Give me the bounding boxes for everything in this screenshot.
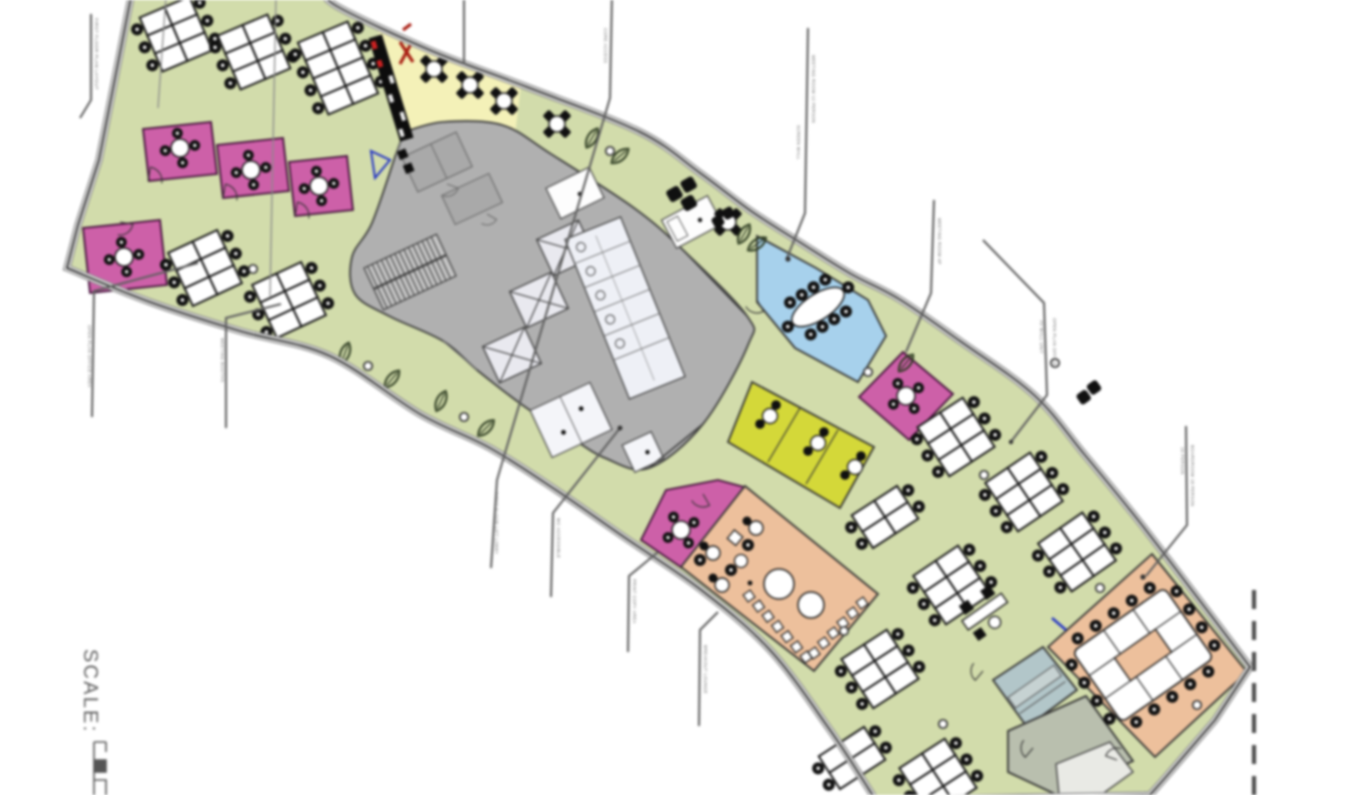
svg-text:WC ACCESSIBLE: WC ACCESSIBLE [556, 518, 561, 558]
svg-text:FIRST FLOOR PLAN LAYOUT: FIRST FLOOR PLAN LAYOUT [94, 18, 99, 90]
svg-text:MEETING ROOM 12 PERSON: MEETING ROOM 12 PERSON [811, 55, 816, 123]
svg-text:CORE ACCESS: CORE ACCESS [603, 28, 608, 63]
svg-text:MEETING BOOTHS: MEETING BOOTHS [220, 338, 225, 383]
svg-text:PRINT COPY AREA: PRINT COPY AREA [632, 579, 637, 624]
svg-text:OPEN PLAN OFFICE AREA: OPEN PLAN OFFICE AREA [87, 325, 92, 388]
svg-text:OPEN PLAN OFFICE: OPEN PLAN OFFICE [1052, 318, 1057, 366]
svg-text:SCALE:: SCALE: [79, 649, 101, 733]
svg-text:FIRST FLOOR LIFT LOBBY: FIRST FLOOR LIFT LOBBY [494, 492, 499, 555]
svg-text:MEETING ROOM 4P: MEETING ROOM 4P [937, 218, 942, 265]
svg-text:SCREEN WALL: SCREEN WALL [796, 125, 801, 160]
svg-text:BREAKOUT LOUNGE: BREAKOUT LOUNGE [703, 645, 708, 694]
svg-text:18 PERSON: 18 PERSON [1180, 447, 1185, 475]
svg-text:AV WALL UNIT: AV WALL UNIT [1039, 320, 1044, 354]
svg-text:BOARDROOM 18 PERSON: BOARDROOM 18 PERSON [1190, 445, 1195, 507]
